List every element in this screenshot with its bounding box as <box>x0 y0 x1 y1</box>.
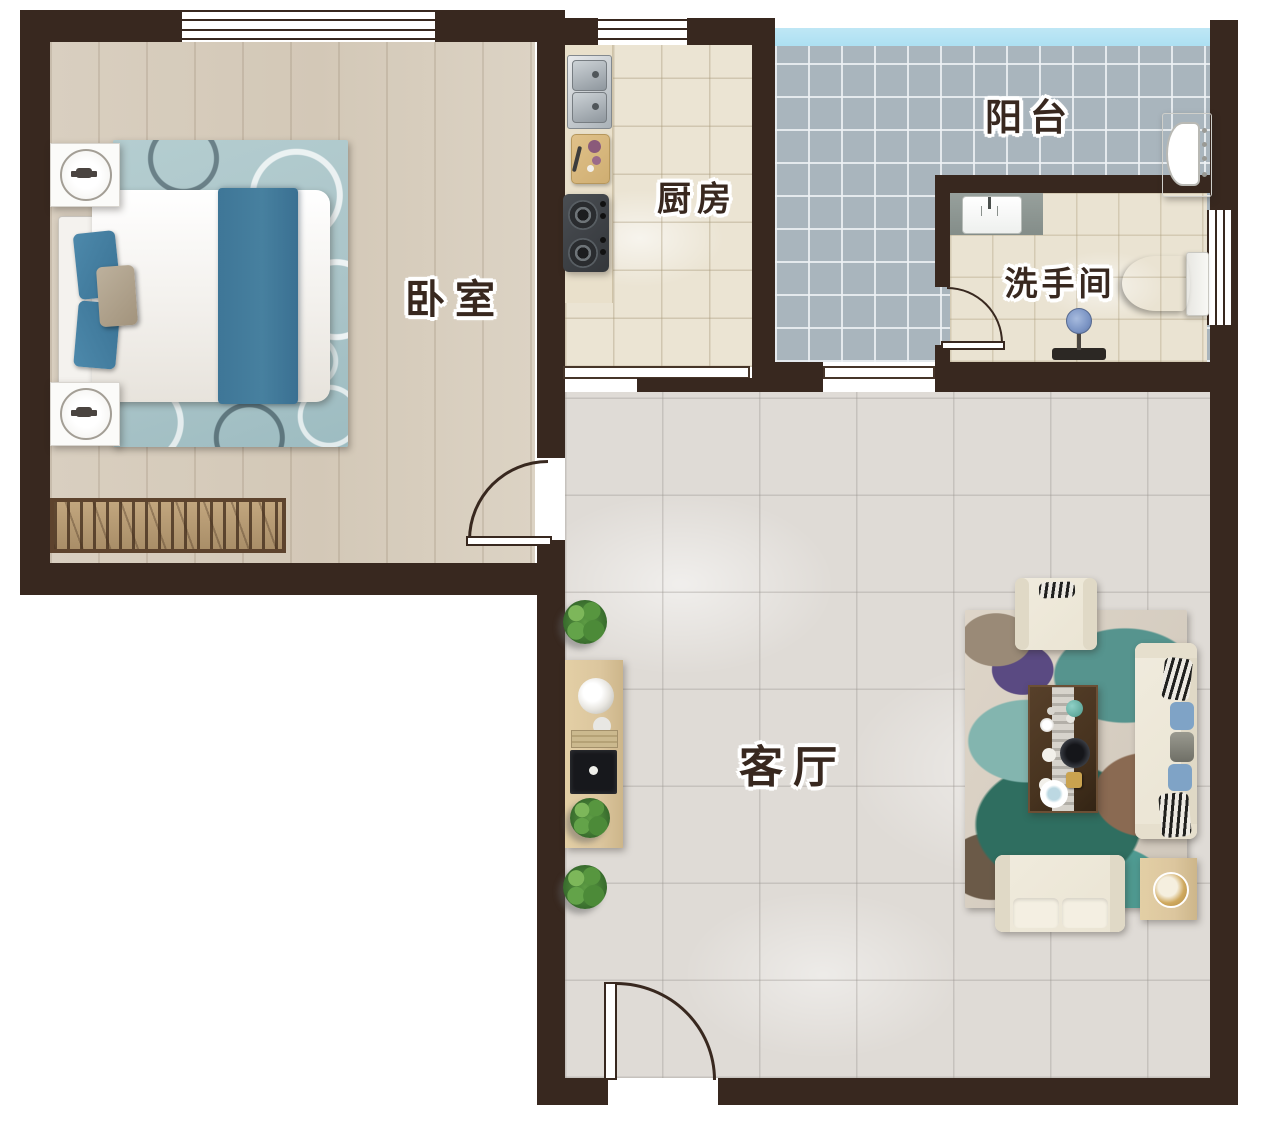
stove-knobs <box>600 201 606 207</box>
teacups <box>1040 718 1054 732</box>
living-wall-left <box>537 540 565 1105</box>
sofa-gray-pillow <box>1170 732 1194 762</box>
large-cup <box>1040 780 1068 808</box>
kitchen-wall-top-left <box>565 18 598 45</box>
bathroom-wall-left-upper <box>935 175 950 287</box>
sink-drain-bottom <box>592 103 599 110</box>
bedroom-living-wall-upper <box>537 10 565 458</box>
tea-tray <box>1060 738 1090 768</box>
console-plant <box>570 798 610 838</box>
stove-burner-bottom <box>568 238 598 268</box>
balcony-living-wall-stub <box>775 362 823 392</box>
sink-drain-top <box>592 71 599 78</box>
bedside-lamp-top-glyph <box>76 168 92 178</box>
kitchen-window <box>598 19 687 44</box>
bedroom-wall-left <box>20 10 50 595</box>
teapot-teal <box>1066 700 1083 717</box>
kitchen-label: 厨房 <box>657 172 737 221</box>
bathroom-washbasin <box>962 196 1022 234</box>
side-table-bowl <box>1153 872 1189 908</box>
bed-pillow-tan <box>96 265 138 328</box>
cutting-board-food <box>588 140 601 153</box>
floor-plan: 卧室 厨房 阳台 洗手间 客厅 <box>0 0 1280 1129</box>
bathroom-door-leaf <box>941 341 1005 350</box>
armchair-zebra-pillow <box>1039 581 1076 598</box>
outer-wall-bottom-right <box>718 1078 1238 1105</box>
loveseat-cushion-left <box>1013 898 1059 928</box>
outer-wall-bottom-left <box>537 1078 608 1105</box>
plant-top <box>563 600 607 644</box>
radiator <box>50 498 286 553</box>
kitchen-sink-basin-top <box>572 60 607 91</box>
sliding-door-panel-right <box>823 366 935 379</box>
armchair-armrest-right <box>1083 578 1097 650</box>
stove-burner-top <box>568 200 598 230</box>
kitchen-sink-basin-bottom <box>572 92 607 123</box>
bedroom-label: 卧室 <box>405 267 505 325</box>
washing-machine-drum <box>1166 122 1200 186</box>
bedroom-wall-bottom <box>20 563 565 595</box>
toilet-bowl <box>1122 256 1190 311</box>
shower-head <box>1066 308 1092 334</box>
sofa-blue-pillow-top <box>1170 702 1194 730</box>
entry-door-leaf <box>604 982 617 1080</box>
bedroom-window <box>182 10 435 40</box>
console-books <box>571 730 618 748</box>
bedroom-door-leaf <box>466 536 552 546</box>
living-room-label: 客厅 <box>739 731 847 795</box>
bathroom-faucet <box>988 197 991 209</box>
kitchen-balcony-wall <box>752 18 775 392</box>
balcony-label: 阳台 <box>985 87 1075 141</box>
loveseat-cushion-right <box>1062 898 1108 928</box>
washing-machine-buttons <box>1202 128 1207 133</box>
balcony-glass-window <box>775 28 1210 46</box>
sofa-zebra-pillow-bottom <box>1158 792 1192 838</box>
loveseat-armrest-right <box>1110 855 1125 932</box>
bathroom-window <box>1207 210 1233 325</box>
tea-caddy <box>1066 772 1082 788</box>
plant-bottom <box>563 865 607 909</box>
sofa-armrest-top <box>1135 643 1197 658</box>
bathroom-living-wall <box>935 362 1238 392</box>
armchair-armrest-left <box>1015 578 1029 650</box>
bed-runner-blanket <box>218 188 298 404</box>
console-flower-decor <box>578 678 614 714</box>
sofa-zebra-pillow-top <box>1161 657 1193 702</box>
outer-wall-right <box>1210 20 1238 1105</box>
sofa-blue-pillow-bottom <box>1168 764 1192 791</box>
console-tv-logo <box>589 766 598 775</box>
bedside-lamp-bottom-glyph <box>76 407 92 417</box>
loveseat-armrest-left <box>995 855 1010 932</box>
bathroom-label: 洗手间 <box>1005 257 1116 305</box>
